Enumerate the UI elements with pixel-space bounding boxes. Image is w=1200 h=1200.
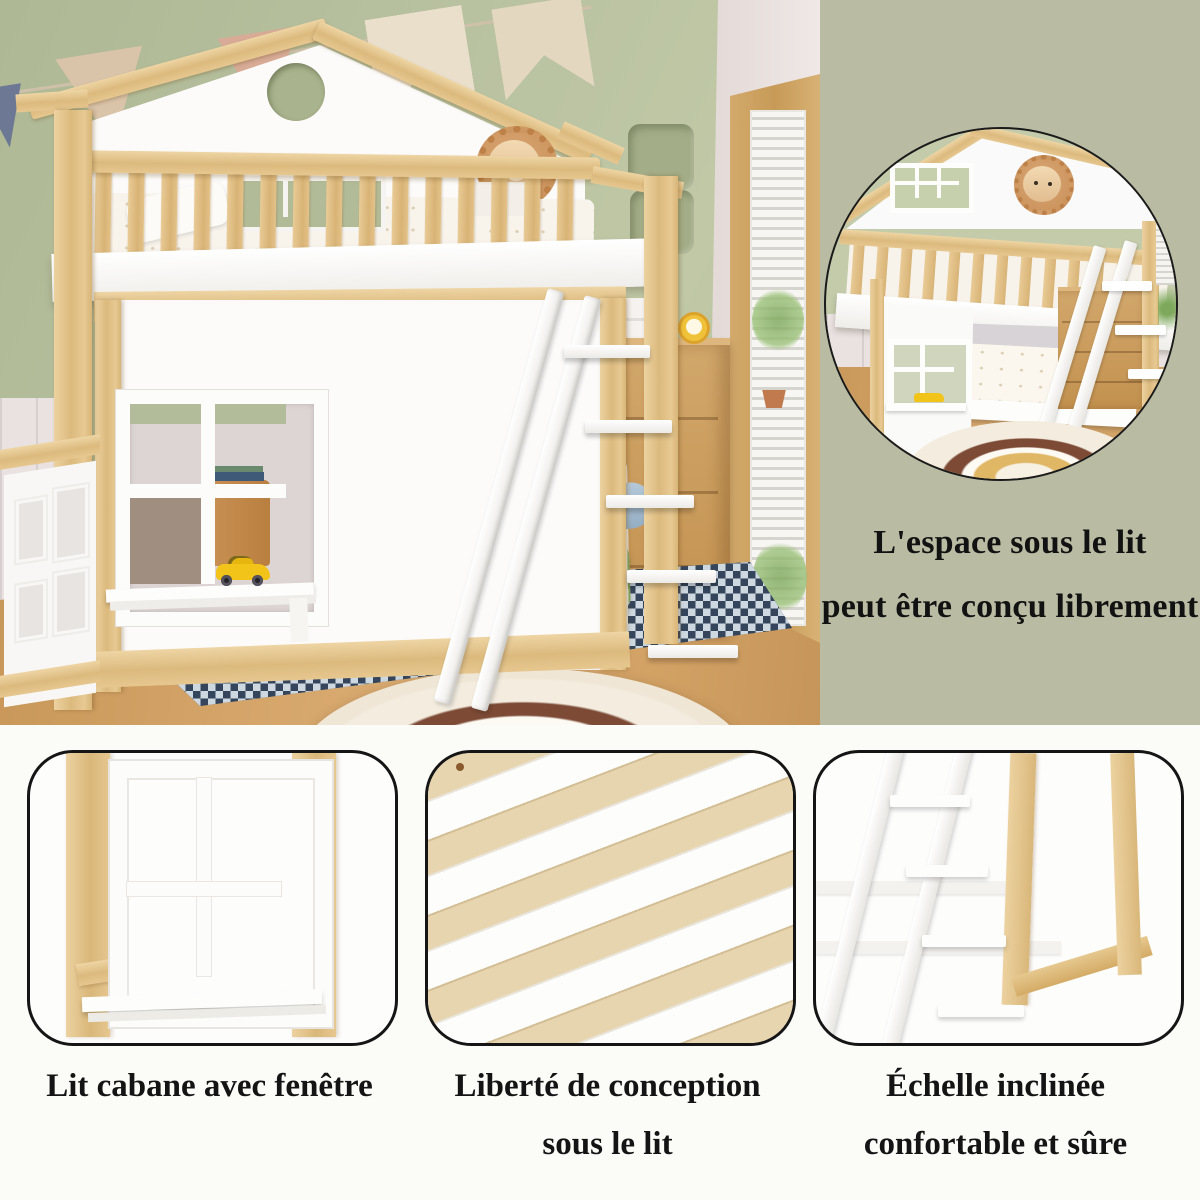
feature-caption-slats-line1: Liberté de conception — [425, 1068, 790, 1105]
panel-caption-line2: peut être conçu librement — [820, 588, 1200, 626]
ladder-step — [1115, 325, 1166, 335]
railing-spindle — [946, 248, 961, 303]
window-mullion — [197, 778, 211, 976]
bed-post — [1002, 753, 1037, 1006]
railing-spindle — [1018, 253, 1033, 308]
side-cutout — [16, 497, 46, 564]
railing-spindle — [193, 171, 210, 259]
railing-spindle — [160, 171, 177, 259]
railing-spindle — [1042, 254, 1057, 309]
dresser-groove — [1062, 381, 1142, 383]
side-cutout — [54, 484, 88, 561]
feature-card-window — [27, 750, 398, 1046]
lion-face — [1023, 166, 1061, 202]
shelf-support — [289, 598, 309, 643]
feature-card-slats — [425, 750, 796, 1046]
product-image: L'espace sous le lit peut être conçu lib… — [0, 0, 1200, 1200]
lion-plush — [1014, 155, 1078, 225]
screw — [456, 763, 464, 771]
toy-car — [914, 393, 944, 402]
railing-spindle — [226, 172, 243, 260]
window-mullion — [895, 181, 959, 185]
feature-caption-slats-line2: sous le lit — [425, 1126, 790, 1163]
lion-eye — [1048, 182, 1052, 186]
features-section: Lit cabane avec fenêtre Liberté de conce… — [0, 725, 1200, 1200]
side-cutout — [16, 581, 46, 642]
playhouse-window — [110, 761, 332, 1027]
window-view-books — [214, 472, 264, 481]
ladder-step — [890, 795, 970, 807]
gable-porthole — [267, 63, 325, 121]
ladder-step — [564, 345, 650, 358]
ladder-step — [1128, 369, 1178, 379]
ladder-step — [585, 420, 672, 433]
railing-spindle — [994, 251, 1009, 306]
feature-card-ladder — [813, 750, 1184, 1046]
ladder-step — [627, 570, 716, 583]
inset-circle-photo — [824, 127, 1178, 481]
ladder-step — [1102, 281, 1152, 291]
ladder-step — [648, 645, 738, 658]
ladder-step — [938, 1005, 1024, 1017]
window-mullion — [127, 882, 281, 896]
window-view-interior — [130, 496, 204, 584]
bed-post — [1110, 753, 1142, 976]
feature-caption-ladder-line2: confortable et sûre — [813, 1126, 1178, 1163]
feature-caption-window: Lit cabane avec fenêtre — [27, 1068, 392, 1105]
window-mullion — [130, 484, 286, 498]
main-photo — [0, 0, 820, 725]
bed-post — [870, 279, 884, 469]
railing-spindle — [127, 170, 144, 258]
bed-gable — [826, 129, 1176, 229]
feature-caption-ladder-line1: Échelle inclinée — [813, 1068, 1178, 1105]
toy-car-wheel — [221, 575, 232, 586]
ladder-step — [906, 865, 988, 877]
gable-window — [890, 163, 974, 213]
ladder-step — [922, 935, 1006, 947]
window-mullion — [894, 367, 954, 372]
railing-spindle — [898, 244, 913, 299]
railing-spindle — [922, 246, 937, 301]
bed-side-rail — [816, 881, 1021, 894]
alarm-clock — [678, 312, 710, 344]
window-shelf — [886, 403, 966, 411]
window-blinds — [1156, 213, 1176, 285]
railing-spindle — [94, 170, 111, 258]
bed-slats — [425, 750, 796, 1046]
railing-spindle — [970, 249, 985, 304]
ladder-step — [1141, 413, 1178, 423]
window-greenery — [752, 288, 804, 352]
panel-caption-line1: L'espace sous le lit — [820, 524, 1200, 562]
railing-spindle — [850, 241, 865, 296]
toy-car-wheel — [252, 575, 263, 586]
side-cutout — [54, 568, 88, 635]
side-panel: L'espace sous le lit peut être conçu lib… — [820, 0, 1200, 725]
bed-post — [66, 753, 110, 1037]
ladder-step — [606, 495, 694, 508]
lion-eye — [1034, 181, 1038, 185]
